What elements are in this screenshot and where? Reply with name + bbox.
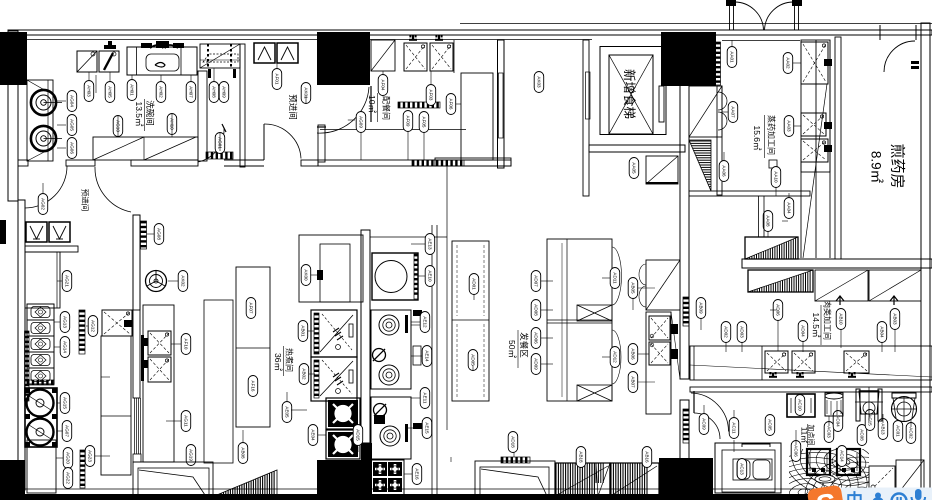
svg-text:AB05: AB05 [631,282,636,294]
svg-text:AE15: AE15 [425,422,430,434]
svg-text:AE14: AE14 [425,350,430,362]
svg-text:AG19: AG19 [189,449,194,461]
svg-text:AB02: AB02 [302,368,307,380]
svg-text:中: 中 [846,490,863,500]
svg-text:AF06: AF06 [449,99,454,110]
svg-text:AC14: AC14 [840,450,845,462]
svg-text:AE13: AE13 [428,238,433,250]
svg-text:AB01: AB01 [301,325,306,337]
svg-text:洗碗间: 洗碗间 [145,100,155,126]
svg-text:AD08: AD08 [534,304,539,316]
svg-text:AF03: AF03 [429,90,434,101]
svg-text:AC04: AC04 [836,415,841,427]
svg-text:AC03: AC03 [827,426,832,438]
svg-text:AD04: AD04 [801,325,806,337]
svg-text:AD01: AD01 [472,278,477,290]
svg-text:AH09: AH09 [222,86,227,98]
svg-text:AE05: AE05 [285,406,290,418]
svg-text:AG02: AG02 [41,198,46,210]
svg-text:AG13: AG13 [63,316,68,328]
svg-text:AB04: AB04 [880,326,885,338]
svg-text:AD05: AD05 [471,354,476,366]
svg-text:AB16: AB16 [645,451,650,463]
svg-text:AB03: AB03 [893,313,898,325]
svg-text:AB18: AB18 [579,451,584,463]
svg-text:AA02: AA02 [786,57,791,69]
svg-text:AA08: AA08 [766,215,771,227]
svg-text:AC02: AC02 [909,427,914,439]
svg-text:AD18: AD18 [511,436,516,448]
svg-text:AA05: AA05 [632,162,637,174]
svg-text:AH07: AH07 [189,86,194,98]
svg-text:AK02: AK02 [181,275,186,287]
svg-text:AG08: AG08 [157,228,162,240]
svg-text:13.5㎡: 13.5㎡ [134,101,144,127]
svg-text:AE12: AE12 [423,316,428,328]
svg-text:AH03: AH03 [87,85,92,97]
svg-text:AC11: AC11 [732,422,737,434]
svg-text:AG15: AG15 [63,397,68,409]
svg-text:AE10: AE10 [428,270,433,282]
svg-text:新增食梯: 新增食梯 [622,69,637,119]
svg-text:14.5㎡: 14.5㎡ [811,312,821,338]
svg-text:AD12: AD12 [613,351,618,363]
svg-text:AG09: AG09 [359,116,364,128]
svg-text:AG12: AG12 [91,320,96,332]
svg-text:AE11: AE11 [423,393,428,404]
svg-text:AG20: AG20 [66,452,71,464]
svg-text:AB13: AB13 [881,423,886,435]
svg-text:AE04: AE04 [311,429,316,441]
svg-text:AG14: AG14 [63,341,68,353]
svg-text:加点间: 加点间 [807,425,816,446]
svg-text:AC13: AC13 [740,463,745,475]
svg-text:8.9㎡: 8.9㎡ [869,151,884,184]
svg-text:AF16: AF16 [251,381,256,392]
svg-text:AA04: AA04 [787,202,792,214]
svg-text:AG11: AG11 [184,415,189,427]
svg-text:AD02: AD02 [724,326,729,338]
svg-text:AD07: AD07 [534,275,539,287]
svg-text:AG04: AG04 [70,95,75,107]
svg-text:AA03: AA03 [787,120,792,132]
svg-text:15.6㎡: 15.6㎡ [752,125,762,151]
svg-text:AC08: AC08 [860,429,865,441]
svg-text:肉类加工间: 肉类加工间 [823,300,833,340]
svg-text:AA10: AA10 [774,171,779,183]
svg-text:AA06: AA06 [722,165,727,177]
svg-text:AF07: AF07 [249,303,254,314]
svg-text:AB10: AB10 [839,313,844,325]
svg-text:AH01: AH01 [130,84,135,96]
svg-text:AA07: AA07 [731,106,736,118]
svg-text:AG22: AG22 [66,472,71,484]
svg-text:AC15: AC15 [868,414,873,426]
svg-text:AC05: AC05 [768,419,773,431]
svg-text:AC01: AC01 [896,425,901,437]
svg-text:AB09: AB09 [699,302,704,314]
svg-text:AA01: AA01 [730,51,735,63]
svg-text:50㎡: 50㎡ [507,340,517,358]
svg-text:AH08: AH08 [212,86,217,98]
svg-text:AG07: AG07 [65,425,70,437]
svg-text:热煮间: 热煮间 [285,348,295,372]
svg-text:AG06: AG06 [70,142,75,154]
svg-text:蒸药加工间: 蒸药加工间 [767,115,777,155]
svg-text:AK00: AK00 [304,269,309,281]
svg-text:AF10: AF10 [184,339,189,350]
svg-text:AF04: AF04 [381,80,386,91]
svg-text:AD09: AD09 [534,358,539,370]
svg-text:AD06: AD06 [534,332,539,344]
svg-text:AG05: AG05 [70,119,75,131]
svg-text:预进间: 预进间 [288,94,298,120]
svg-text:AH05: AH05 [108,86,113,98]
svg-text:发餐区: 发餐区 [519,332,529,358]
svg-text:AD03: AD03 [740,326,745,338]
svg-text:AE16: AE16 [415,468,420,480]
svg-text:配餐间: 配餐间 [382,96,391,120]
svg-text:AF01: AF01 [275,74,280,85]
svg-text:AF09: AF09 [406,116,411,127]
svg-text:10㎡: 10㎡ [367,95,377,113]
svg-text:AD11: AD11 [613,272,618,284]
svg-text:AD15: AD15 [356,429,361,441]
svg-text:36㎡: 36㎡ [273,353,283,371]
svg-text:AK03: AK03 [537,76,542,88]
svg-text:AB08: AB08 [241,447,246,459]
svg-text:AB07: AB07 [631,376,636,388]
svg-text:AF05: AF05 [422,117,427,128]
svg-text:预进间: 预进间 [81,189,91,212]
svg-text:AC10: AC10 [798,399,803,411]
svg-text:AB06: AB06 [631,348,636,360]
svg-text:AC06: AC06 [794,445,799,457]
svg-text:AC09: AC09 [702,418,707,430]
svg-text:AG21: AG21 [65,275,70,287]
svg-text:AH02: AH02 [159,86,164,98]
svg-text:煎药房: 煎药房 [889,143,906,188]
svg-text:AG23: AG23 [88,450,93,462]
